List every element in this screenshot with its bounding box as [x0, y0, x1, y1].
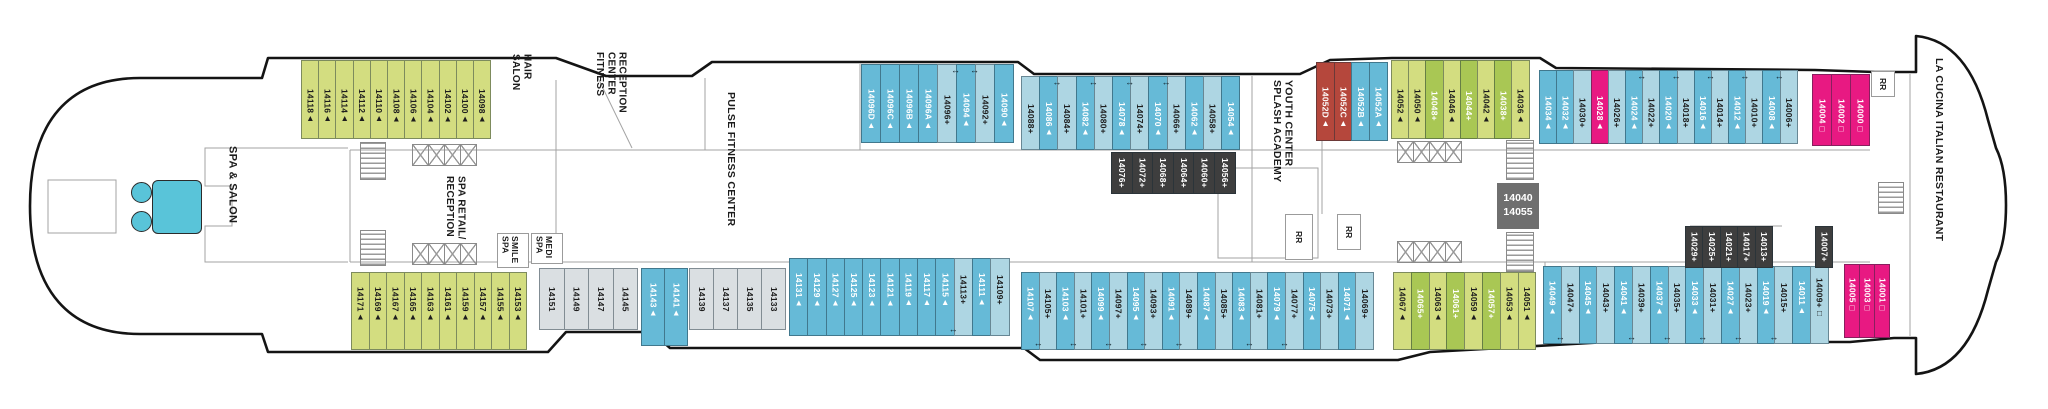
balcony-band [881, 65, 899, 78]
cabin-number: 14096A▲ [924, 89, 933, 130]
cabin-14131[interactable]: 14131▲ [789, 258, 808, 336]
cabin-14043[interactable]: 14043+ [1596, 266, 1615, 344]
cabin-14165[interactable]: 14165▲ [404, 272, 423, 350]
stairs-icon [1506, 232, 1534, 272]
cabin-14112[interactable]: 14112▲ [353, 60, 371, 139]
cabin-14062[interactable]: 14062▲ [1185, 76, 1204, 150]
cabin-14073[interactable]: 14073+ [1320, 272, 1339, 350]
cabin-number: 14077+ [1290, 289, 1299, 319]
cabin-14004[interactable]: 14004□ [1812, 74, 1832, 146]
balcony-band [1465, 335, 1482, 349]
cabin-number: 14009+□ [1815, 278, 1824, 318]
cabin-number: 14099▲ [1096, 287, 1105, 322]
cabin-body: 14056+ [1215, 153, 1235, 193]
cabin-14089[interactable]: 14089+↔ [1179, 272, 1198, 350]
cabin-strip-bot-inside2: 14007+ [1816, 226, 1833, 268]
cabin-14135[interactable]: 14135 [737, 268, 762, 330]
cabin-14139[interactable]: 14139 [689, 268, 714, 330]
cabin-body: 14127▲ [827, 259, 844, 321]
cabin-14096C[interactable]: 14096C▲ [880, 64, 900, 143]
cabin-14052C[interactable]: 14052C▲ [1334, 62, 1353, 141]
cabin-14111[interactable]: 14111▲ [972, 258, 991, 336]
cabin-14046[interactable]: 14046▲ [1443, 60, 1461, 139]
cabin-14155[interactable]: 14155▲ [491, 272, 510, 350]
cabin-14106[interactable]: 14106▲ [404, 60, 422, 139]
cabin-14114[interactable]: 14114▲ [335, 60, 353, 139]
cabin-14072[interactable]: 14072+ [1132, 152, 1154, 194]
cabin-strip-top-blue-b: 14088+14086▲14084+↔14082▲14080+↔14078▲14… [1022, 76, 1240, 150]
cabin-body: 14048+ [1426, 74, 1442, 138]
cabin-14127[interactable]: 14127▲ [826, 258, 845, 336]
cabin-14009[interactable]: 14009+□ [1810, 266, 1829, 344]
cabin-14018[interactable]: 14018+↔ [1677, 70, 1695, 144]
cabin-number: 14052D▲ [1321, 87, 1330, 128]
cabin-number: 14062▲ [1190, 102, 1199, 137]
balcony-band [973, 321, 990, 335]
cabin-body: 14155▲ [492, 273, 509, 335]
cabin-strip-bot-gray-b: 14139141371413514133 [690, 268, 786, 330]
cabin-14096D[interactable]: 14096D▲ [861, 64, 881, 143]
cabin-14065[interactable]: 14065+ [1411, 272, 1430, 350]
cabin-body: 14091▲ [1163, 273, 1180, 335]
cabin-14098[interactable]: 14098▲ [473, 60, 491, 139]
cabin-14054[interactable]: 14054▲ [1221, 76, 1240, 150]
balcony-band [405, 61, 421, 74]
cabin-14010[interactable]: 14010+↔ [1745, 70, 1763, 144]
cabin-body: 14059▲ [1465, 273, 1482, 335]
cabin-14157[interactable]: 14157▲ [474, 272, 493, 350]
cabin-body: 14114▲ [336, 74, 352, 138]
cabin-14038[interactable]: 14038+ [1494, 60, 1512, 139]
cabin-14029[interactable]: 14029+ [1685, 226, 1703, 268]
cabin-14121[interactable]: 14121▲ [880, 258, 899, 336]
cabin-14044[interactable]: 14044+ [1460, 60, 1478, 139]
cabin-14108[interactable]: 14108▲ [387, 60, 405, 139]
cabin-14102[interactable]: 14102▲ [439, 60, 457, 139]
cabin-body: 14106▲ [405, 74, 421, 138]
cabin-number: 14129▲ [813, 273, 822, 308]
cabin-14034[interactable]: 14034▲ [1539, 70, 1557, 144]
cabin-14070[interactable]: 14070▲ [1148, 76, 1167, 150]
cabin-14048[interactable]: 14048+ [1425, 60, 1443, 139]
cabin-14116[interactable]: 14116▲ [318, 60, 336, 139]
cabin-14021[interactable]: 14021+ [1720, 226, 1738, 268]
cabin-14163[interactable]: 14163▲ [421, 272, 440, 350]
cabin-14003[interactable]: 14003□ [1859, 264, 1875, 338]
cabin-14052A[interactable]: 14052A▲ [1369, 62, 1388, 141]
cabin-number: 14029+ [1690, 232, 1699, 262]
balcony-band [457, 61, 473, 74]
cabin-14113[interactable]: 14113+↔ [954, 258, 973, 336]
cabin-body: 14100▲ [457, 74, 473, 138]
cabin-14012[interactable]: 14012▲ [1728, 70, 1746, 144]
cabin-body: 14057+ [1483, 273, 1500, 335]
cabin-number: 14030+ [1578, 98, 1587, 128]
cabin-number: 14127▲ [831, 273, 840, 308]
cabin-number: 14073+ [1325, 289, 1334, 319]
cabin-number: 14089+ [1184, 289, 1193, 319]
cabin-body: 14123▲ [863, 259, 880, 321]
cabin-14145[interactable]: 14145 [613, 268, 639, 330]
cabin-14020[interactable]: 14020▲ [1659, 70, 1677, 144]
cabin-number: 14153▲ [514, 287, 523, 322]
cabin-14141[interactable]: 14141▲ [664, 268, 688, 346]
connecting-rooms-arrow-icon: ↔ [1174, 339, 1183, 348]
cabin-body: 14125▲ [845, 259, 862, 321]
cabin-number: 14133 [769, 287, 778, 312]
cabin-14030[interactable]: 14030+ [1573, 70, 1591, 144]
cabin-14001[interactable]: 14001□ [1874, 264, 1890, 338]
balcony-band [492, 335, 509, 349]
cabin-body: 14083▲ [1233, 273, 1250, 335]
cabin-body: 14088+ [1022, 89, 1039, 149]
cabin-number: 14086▲ [1045, 102, 1054, 137]
connecting-rooms-arrow-icon: ↔ [1637, 72, 1646, 81]
cabin-body: 14107▲ [1022, 273, 1039, 335]
cabin-14074[interactable]: 14074+↔ [1130, 76, 1149, 150]
cabin-14011[interactable]: 14011▲ [1792, 266, 1811, 344]
cabin-14088[interactable]: 14088+ [1021, 76, 1040, 150]
cabin-body: 14167▲ [387, 273, 404, 335]
cabin-14171[interactable]: 14171▲ [351, 272, 370, 350]
cabin-14058[interactable]: 14058+ [1203, 76, 1222, 150]
cabin-14084[interactable]: 14084+↔ [1057, 76, 1076, 150]
cabin-body: 14115▲ [936, 259, 953, 321]
cabin-14002[interactable]: 14002□ [1831, 74, 1851, 146]
cabin-14147[interactable]: 14147 [588, 268, 614, 330]
cabin-14117[interactable]: 14117▲ [917, 258, 936, 336]
cabin-14097[interactable]: 14097+↔ [1109, 272, 1128, 350]
cabin-number: 14005□ [1848, 278, 1857, 313]
cabin-body: 14103▲ [1057, 273, 1074, 335]
cabin-14078[interactable]: 14078▲ [1112, 76, 1131, 150]
cabin-body: 14070▲ [1149, 89, 1166, 149]
spa-tub-circle-icon [131, 182, 152, 203]
elevator-icon [1429, 141, 1446, 163]
cabin-14076[interactable]: 14076+ [1111, 152, 1133, 194]
cabin-14000[interactable]: 14000□ [1850, 74, 1870, 146]
cabin-14090[interactable]: 14090▲ [994, 64, 1014, 143]
cabin-14077[interactable]: 14077+↔ [1285, 272, 1304, 350]
cabin-number: 14084+ [1063, 104, 1072, 134]
connecting-rooms-arrow-icon: ↔ [1663, 333, 1672, 342]
cabin-body: 14051▲ [1519, 273, 1536, 335]
cabin-14045[interactable]: 14045▲ [1579, 266, 1598, 344]
cabin-14016[interactable]: 14016▲ [1694, 70, 1712, 144]
cabin-body: 14052D▲ [1317, 76, 1334, 140]
cabin-14026[interactable]: 14026+ [1608, 70, 1626, 144]
cabin-body: 14033▲ [1686, 267, 1703, 329]
cabin-number: 14002□ [1837, 99, 1846, 134]
cabin-14053[interactable]: 14053▲ [1500, 272, 1519, 350]
balcony-band [991, 321, 1008, 335]
cabin-number: 14079▲ [1272, 287, 1281, 322]
balcony-band [1412, 335, 1429, 349]
cabin-14025[interactable]: 14025+ [1702, 226, 1720, 268]
balcony-band [1430, 335, 1447, 349]
cabin-14110[interactable]: 14110▲ [370, 60, 388, 139]
cabin-body: 14149 [565, 269, 589, 329]
cabin-number: 14054▲ [1226, 102, 1235, 137]
cabin-body: 14007+ [1816, 227, 1832, 267]
cabin-body: 14023+ [1740, 267, 1757, 329]
balcony-band [1409, 61, 1425, 74]
cabin-body: 14015+ [1775, 267, 1792, 329]
cabin-14096A[interactable]: 14096A▲ [918, 64, 938, 143]
cabin-14050[interactable]: 14050▲ [1408, 60, 1426, 139]
cabin-14085[interactable]: 14085+ [1215, 272, 1234, 350]
cabin-14024[interactable]: 14024▲ [1625, 70, 1643, 144]
cabin-14008[interactable]: 14008▲ [1762, 70, 1780, 144]
cabin-number: 14125▲ [849, 273, 858, 308]
cabin-number: 14008▲ [1767, 96, 1776, 131]
cabin-body: 14089+ [1180, 273, 1197, 335]
cabin-14093[interactable]: 14093+↔ [1144, 272, 1163, 350]
cabin-body: 14101+ [1075, 273, 1092, 335]
cabin-14087[interactable]: 14087▲ [1197, 272, 1216, 350]
balcony-band [1478, 61, 1494, 74]
cabin-14032[interactable]: 14032▲ [1556, 70, 1574, 144]
cabin-14007[interactable]: 14007+ [1815, 226, 1833, 268]
cabin-14104[interactable]: 14104▲ [421, 60, 439, 139]
cabin-number: 14027▲ [1726, 281, 1735, 316]
elevator-icon [1445, 141, 1462, 163]
cabin-body: 14116▲ [319, 74, 335, 138]
cabin-14028[interactable]: 14028▲ [1591, 70, 1609, 144]
cabin-number: 14011▲ [1797, 281, 1806, 315]
cabin-number: 14026+ [1613, 98, 1622, 128]
cabin-body: 14012▲ [1729, 83, 1745, 143]
balcony-band [1592, 71, 1608, 83]
cabin-number: 14118▲ [306, 89, 315, 123]
cabin-14066[interactable]: 14066+↔ [1167, 76, 1186, 150]
cabin-body: 14046▲ [1444, 74, 1460, 138]
cabin-14109[interactable]: 14109+ [990, 258, 1009, 336]
cabin-14022[interactable]: 14022+↔ [1642, 70, 1660, 144]
cabin-14086[interactable]: 14086▲ [1039, 76, 1058, 150]
cabin-14149[interactable]: 14149 [564, 268, 590, 330]
cabin-14125[interactable]: 14125▲ [844, 258, 863, 336]
cabin-14092[interactable]: 14092+↔ [975, 64, 995, 143]
cabin-body: 14043+ [1597, 267, 1614, 329]
cabin-body: 14030+ [1574, 83, 1590, 143]
balcony-band [440, 61, 456, 74]
cabin-number: 14097+ [1114, 289, 1123, 319]
balcony-band [1845, 325, 1859, 337]
cabin-14036[interactable]: 14036▲ [1511, 60, 1529, 139]
cabin-body: 14063▲ [1430, 273, 1447, 335]
cabin-body: 14021+ [1721, 227, 1737, 267]
stairs-icon [360, 142, 386, 180]
cabin-body: 14068+ [1153, 153, 1173, 193]
cabin-14123[interactable]: 14123▲ [862, 258, 881, 336]
cabin-14119[interactable]: 14119▲ [899, 258, 918, 336]
elevator-icon [1429, 241, 1446, 263]
cabin-body: 14084+ [1058, 89, 1075, 149]
cabin-body: 14077+ [1286, 273, 1303, 335]
cabin-number: 14082▲ [1081, 102, 1090, 137]
cabin-14118[interactable]: 14118▲ [301, 60, 319, 139]
label-spa-salon: SPA & SALON [226, 146, 238, 266]
cabin-14100[interactable]: 14100▲ [456, 60, 474, 139]
cabin-14068[interactable]: 14068+ [1152, 152, 1174, 194]
cabin-body: 14159▲ [457, 273, 474, 335]
cabin-number: 14110▲ [375, 89, 384, 123]
cabin-body: 14008▲ [1763, 83, 1779, 143]
cabin-14096[interactable]: 14096+ [937, 64, 957, 143]
connecting-rooms-arrow-icon: ↔ [1125, 78, 1134, 87]
cabin-14082[interactable]: 14082▲ [1076, 76, 1095, 150]
cabin-number: 14115▲ [941, 273, 950, 307]
balcony-band [1204, 77, 1221, 89]
cabin-body: 14014+ [1712, 83, 1728, 143]
cabin-14031[interactable]: 14031+↔ [1703, 266, 1722, 344]
cabin-14069[interactable]: 14069+ [1355, 272, 1374, 350]
balcony-band [863, 321, 880, 335]
cabin-14047[interactable]: 14047+↔ [1561, 266, 1580, 344]
cabin-body: 14145 [614, 269, 638, 329]
cabin-14015[interactable]: 14015+↔ [1774, 266, 1793, 344]
cabin-14035[interactable]: 14035+↔ [1668, 266, 1687, 344]
connecting-rooms-arrow-icon: ↔ [1698, 333, 1707, 342]
cabin-14161[interactable]: 14161▲ [439, 272, 458, 350]
cabin-14051[interactable]: 14051▲ [1518, 272, 1537, 350]
cabin-14060[interactable]: 14060+ [1193, 152, 1215, 194]
cabin-number: 14052C▲ [1339, 87, 1348, 128]
cabin-14067[interactable]: 14067▲ [1393, 272, 1412, 350]
cabin-body: 14080+ [1095, 89, 1112, 149]
cabin-14039[interactable]: 14039+↔ [1632, 266, 1651, 344]
cabin-number: 14001□ [1878, 278, 1887, 313]
cabin-number: 14070▲ [1154, 102, 1163, 137]
connecting-rooms-arrow-icon: ↔ [1162, 78, 1171, 87]
cabin-14061[interactable]: 14061+ [1446, 272, 1465, 350]
cabin-body: 14133 [762, 269, 785, 329]
cabin-body: 14143▲ [642, 269, 664, 331]
cabin-number: 14101+ [1079, 289, 1088, 319]
cabin-14006[interactable]: 14006+↔ [1780, 70, 1798, 144]
cabin-number: 14093+ [1149, 289, 1158, 319]
cabin-body: 14062▲ [1186, 89, 1203, 149]
cabin-14133[interactable]: 14133 [761, 268, 786, 330]
cabin-number: 14068+ [1159, 158, 1168, 188]
cabin-14042[interactable]: 14042▲ [1477, 60, 1495, 139]
cabin-14052[interactable]: 14052▲ [1391, 60, 1409, 139]
cabin-14129[interactable]: 14129▲ [807, 258, 826, 336]
cabin-body: 14016▲ [1695, 83, 1711, 143]
cabin-number: 14039+ [1637, 283, 1646, 313]
cabin-14143[interactable]: 14143▲ [641, 268, 665, 346]
balcony-band [319, 61, 335, 74]
cabin-number: 14092+ [981, 95, 990, 125]
cabin-body: 14076+ [1112, 153, 1132, 193]
cabin-14017[interactable]: 14017+ [1737, 226, 1755, 268]
cabin-14101[interactable]: 14101+↔ [1074, 272, 1093, 350]
cabin-14169[interactable]: 14169▲ [369, 272, 388, 350]
cabin-number: 14071▲ [1343, 287, 1352, 322]
cabin-body: 14067▲ [1394, 273, 1411, 335]
cabin-body: 14079▲ [1268, 273, 1285, 335]
cabin-14064[interactable]: 14064+ [1173, 152, 1195, 194]
cabin-number: 14036▲ [1516, 89, 1525, 124]
cabin-number: 14169▲ [374, 287, 383, 322]
balcony-band [1394, 335, 1411, 349]
cabin-14056[interactable]: 14056+ [1214, 152, 1236, 194]
mid-cabin-block[interactable]: 1404014055 [1497, 183, 1539, 229]
cabin-14059[interactable]: 14059▲ [1464, 272, 1483, 350]
cabin-number: 14096D▲ [867, 89, 876, 130]
cabin-body: 14032▲ [1557, 83, 1573, 143]
cabin-number: 14060+ [1200, 158, 1209, 188]
cabin-14005[interactable]: 14005□ [1844, 264, 1860, 338]
cabin-14014[interactable]: 14014+↔ [1711, 70, 1729, 144]
cabin-body: 14095▲ [1128, 273, 1145, 335]
spa-tub-circle-icon [131, 211, 152, 232]
cabin-14063[interactable]: 14063▲ [1429, 272, 1448, 350]
cabin-body: 14096D▲ [862, 78, 880, 142]
cabin-number: 14107▲ [1026, 287, 1035, 322]
cabin-number: 14106▲ [409, 89, 418, 124]
cabin-body: 14074+ [1131, 89, 1148, 149]
cabin-body: 14165▲ [405, 273, 422, 335]
cabin-number: 14095▲ [1132, 287, 1141, 322]
cabin-14075[interactable]: 14075▲ [1303, 272, 1322, 350]
cabin-14052B[interactable]: 14052B▲ [1351, 62, 1370, 141]
cabin-14071[interactable]: 14071▲ [1338, 272, 1357, 350]
cabin-14137[interactable]: 14137 [713, 268, 738, 330]
stairs-icon [360, 230, 386, 266]
cabin-number: 14025+ [1707, 232, 1716, 262]
cabin-body: 14096A▲ [919, 78, 937, 142]
connecting-rooms-arrow-icon: ↔ [1280, 339, 1289, 348]
cabin-14081[interactable]: 14081+↔ [1250, 272, 1269, 350]
cabin-14096B[interactable]: 14096B▲ [899, 64, 919, 143]
cabin-14052D[interactable]: 14052D▲ [1316, 62, 1335, 141]
elevator-bank [413, 144, 477, 166]
cabin-14080[interactable]: 14080+↔ [1094, 76, 1113, 150]
balcony-band [1339, 335, 1356, 349]
connecting-rooms-arrow-icon: ↔ [1627, 333, 1636, 342]
balcony-band [1198, 335, 1215, 349]
cabin-body: 14121▲ [881, 259, 898, 321]
cabin-strip-bot-lime: 14171▲14169▲14167▲14165▲14163▲14161▲1415… [352, 272, 527, 350]
balcony-band [302, 61, 318, 74]
cabin-body: 14104▲ [422, 74, 438, 138]
cabin-body: 14058+ [1204, 89, 1221, 149]
cabin-number: 14096+ [943, 95, 952, 125]
cabin-body: 14049▲ [1544, 267, 1561, 329]
cabin-14153[interactable]: 14153▲ [509, 272, 528, 350]
cabin-14159[interactable]: 14159▲ [456, 272, 475, 350]
cabin-number: 14171▲ [356, 287, 365, 322]
cabin-14094[interactable]: 14094▲↔ [956, 64, 976, 143]
cabin-strip-top-green: 14052▲14050▲14048+14046▲14044+14042▲1403… [1392, 60, 1530, 139]
cabin-14023[interactable]: 14023+↔ [1739, 266, 1758, 344]
cabin-14105[interactable]: 14105+↔ [1039, 272, 1058, 350]
cabin-number: 14052B▲ [1356, 87, 1365, 128]
balcony-band [371, 61, 387, 74]
cabin-14167[interactable]: 14167▲ [386, 272, 405, 350]
cabin-number: 14123▲ [868, 273, 877, 308]
elevator-icon [1397, 141, 1414, 163]
cabin-number: 14149 [572, 287, 581, 312]
cabin-14013[interactable]: 14013+ [1755, 226, 1773, 268]
cabin-14151[interactable]: 14151 [539, 268, 565, 330]
cabin-number: 14074+ [1135, 104, 1144, 134]
cabin-body: 14119▲ [900, 259, 917, 321]
restroom: RR [1337, 214, 1361, 250]
cabin-14057[interactable]: 14057+ [1482, 272, 1501, 350]
